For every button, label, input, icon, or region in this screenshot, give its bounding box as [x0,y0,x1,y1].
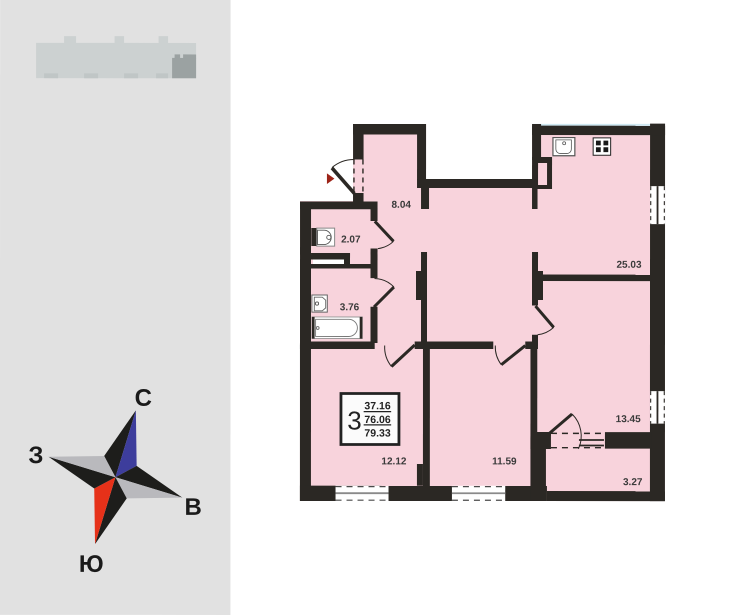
svg-text:79.33: 79.33 [364,427,390,439]
svg-text:3: 3 [347,405,361,435]
svg-text:11.59: 11.59 [492,456,517,467]
svg-text:З: З [28,442,43,469]
svg-text:С: С [135,385,152,412]
svg-text:3.76: 3.76 [340,302,360,313]
svg-text:2.07: 2.07 [341,234,361,245]
svg-text:Ю: Ю [79,551,104,578]
svg-text:76.06: 76.06 [364,414,390,426]
svg-text:В: В [185,494,202,521]
svg-text:25.03: 25.03 [616,260,641,271]
svg-text:8.04: 8.04 [391,200,411,211]
svg-text:37.16: 37.16 [364,400,390,412]
svg-text:13.45: 13.45 [616,414,641,425]
svg-text:3.27: 3.27 [623,477,643,488]
svg-text:12.12: 12.12 [381,456,406,467]
